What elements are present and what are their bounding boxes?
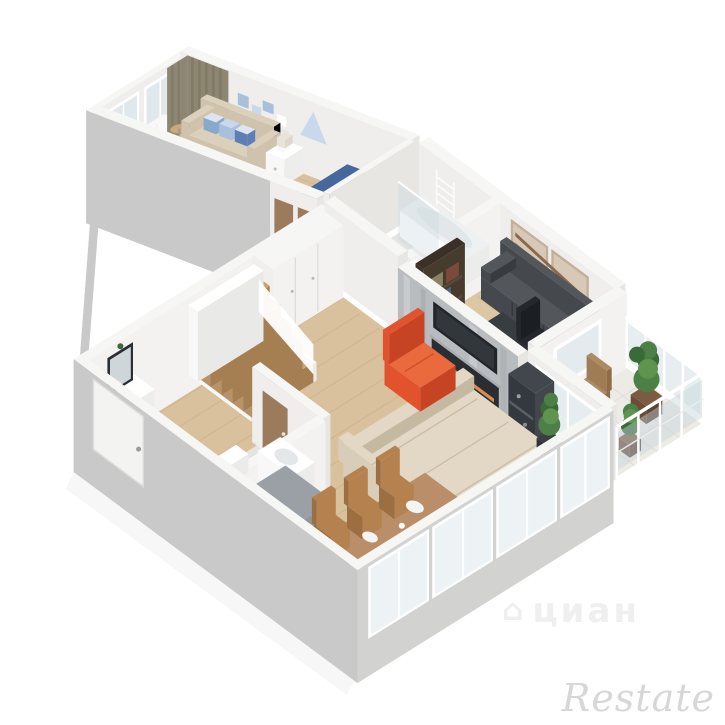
portal-watermark-text: циан — [532, 591, 639, 631]
house-icon: ⌂ — [502, 596, 526, 626]
portal-watermark: ⌂ циан — [502, 588, 672, 634]
floor-plan-render: ⌂ циан Restate — [0, 0, 725, 725]
brand-watermark: Restate — [495, 676, 715, 720]
